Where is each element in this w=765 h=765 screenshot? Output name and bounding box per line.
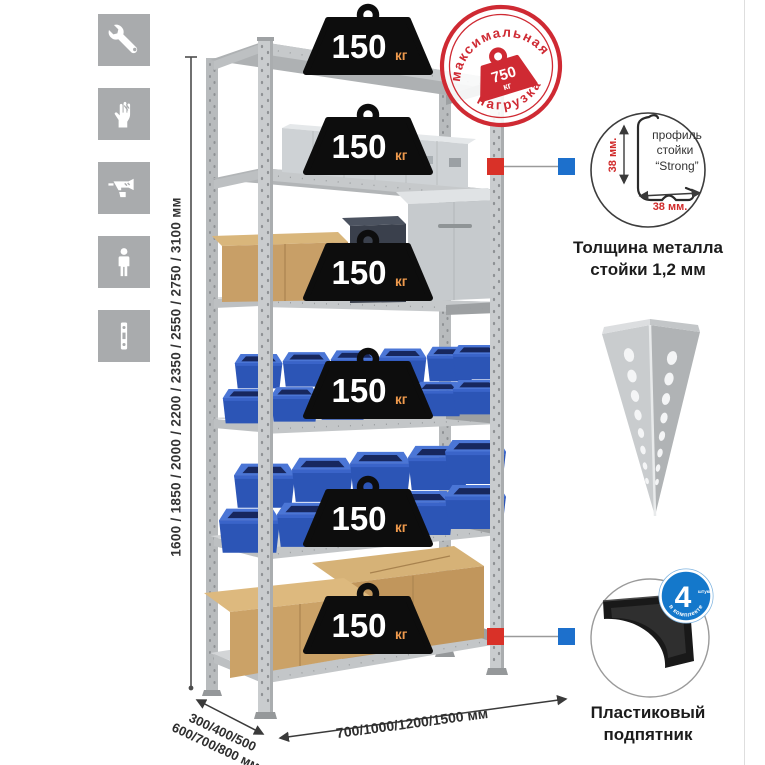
svg-text:штуки: штуки xyxy=(698,589,712,594)
svg-text:150: 150 xyxy=(331,500,386,537)
svg-text:кг: кг xyxy=(395,48,408,63)
svg-text:38 мм.: 38 мм. xyxy=(653,201,688,213)
svg-text:150: 150 xyxy=(331,607,386,644)
profile-caption: Толщина металла стойки 1,2 мм xyxy=(548,237,748,281)
quantity-badge: 4 штуки в комплекте xyxy=(659,569,713,623)
svg-text:150: 150 xyxy=(331,254,386,291)
svg-text:кг: кг xyxy=(395,148,408,163)
svg-text:стойки: стойки xyxy=(657,143,694,157)
foot-callout-circle: 4 штуки в комплекте xyxy=(591,569,713,697)
post-profile-graphic xyxy=(602,319,700,516)
svg-text:кг: кг xyxy=(395,392,408,407)
svg-text:38 мм.: 38 мм. xyxy=(607,138,619,173)
svg-text:профиль: профиль xyxy=(652,128,702,142)
profile-callout-circle: 38 мм. 38 мм. профиль стойки “Strong” xyxy=(591,113,705,227)
svg-text:4: 4 xyxy=(675,581,692,614)
height-dimension-label: 1600 / 1850 / 2000 / 2200 / 2350 / 2550 … xyxy=(169,197,184,557)
foot-caption-line-2: подпятник xyxy=(548,724,748,746)
shelf-load-badge-1: 150 кг xyxy=(306,7,430,72)
shelf-load-badge-2: 150 кг xyxy=(306,107,430,172)
rack-scene: 150 кг 150 кг 150 кг 150 кг 150 кг xyxy=(0,0,765,765)
foot-caption-line-1: Пластиковый xyxy=(548,702,748,724)
svg-text:кг: кг xyxy=(395,627,408,642)
profile-callout-connector xyxy=(487,158,575,175)
svg-text:“Strong”: “Strong” xyxy=(655,159,698,173)
svg-text:кг: кг xyxy=(395,520,408,535)
svg-text:150: 150 xyxy=(331,28,386,65)
infographic-canvas: 150 кг 150 кг 150 кг 150 кг 150 кг xyxy=(0,0,765,765)
profile-caption-line-2: стойки 1,2 мм xyxy=(548,259,748,281)
svg-text:кг: кг xyxy=(395,274,408,289)
height-dimension-line xyxy=(185,57,197,690)
svg-text:150: 150 xyxy=(331,372,386,409)
page-edge-line xyxy=(744,0,745,765)
foot-callout-connector xyxy=(487,628,575,645)
profile-caption-line-1: Толщина металла xyxy=(548,237,748,259)
svg-text:150: 150 xyxy=(331,128,386,165)
foot-caption: Пластиковый подпятник xyxy=(548,702,748,746)
